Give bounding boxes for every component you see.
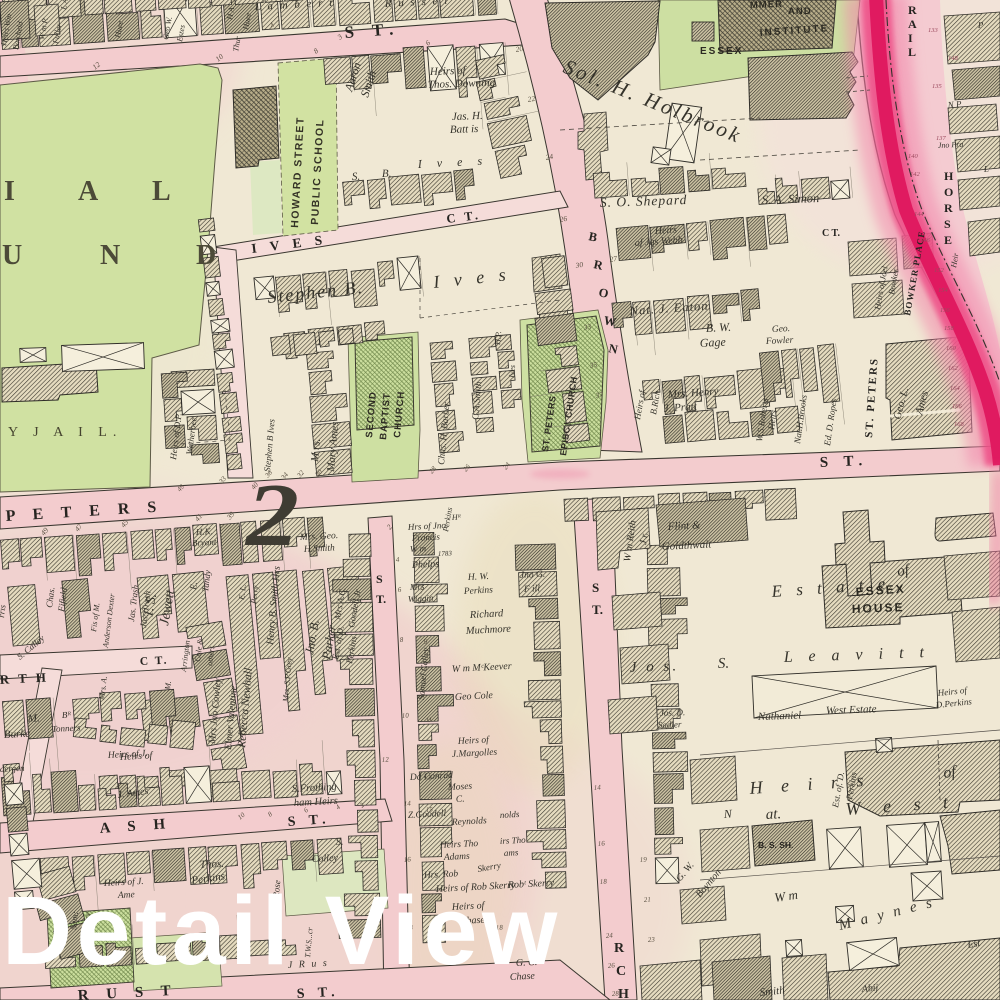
svg-text:Heirs of: Heirs of [429,65,468,78]
svg-text:Heirs Tho: Heirs Tho [439,839,479,851]
svg-text:Phelps: Phelps [411,559,440,571]
svg-text:28: 28 [611,989,619,998]
svg-text:B. S. SH.: B. S. SH. [758,840,793,850]
svg-text:H. W.: H. W. [467,572,490,583]
svg-text:W m: W m [410,543,427,554]
svg-text:S T.: S T. [819,453,868,471]
svg-text:Jos. D.: Jos. D. [660,707,686,718]
svg-text:162: 162 [948,365,959,372]
svg-text:133: 133 [928,27,939,34]
svg-text:S.: S. [352,171,361,183]
svg-text:14: 14 [403,799,411,808]
svg-text:Geo.: Geo. [772,324,791,335]
svg-text:23: 23 [647,935,655,944]
svg-text:135: 135 [932,83,943,90]
svg-text:16: 16 [403,855,411,864]
svg-text:H.Smith: H.Smith [303,543,336,555]
svg-text:158: 158 [944,325,955,332]
svg-text:16: 16 [597,839,605,848]
svg-text:irs Tho: irs Tho [500,835,527,846]
svg-text:S.: S. [718,656,730,672]
svg-text:E.: E. [188,581,199,591]
svg-text:Perkins: Perkins [463,585,494,597]
svg-text:160: 160 [946,345,957,352]
svg-text:Reynolds: Reynolds [451,816,488,828]
svg-text:L: L [908,45,916,59]
svg-text:M.: M. [163,681,173,692]
svg-text:H.K.: H.K. [195,526,214,537]
svg-text:140: 140 [908,153,919,160]
svg-text:148: 148 [948,55,959,62]
svg-text:142: 142 [910,171,921,178]
svg-text:C T.: C T. [822,228,840,239]
svg-text:C T.: C T. [140,655,169,668]
svg-text:S. O. Shepard: S. O. Shepard [600,192,688,210]
svg-text:N: N [722,807,733,822]
svg-text:T.: T. [376,592,386,606]
svg-text:L: L [983,164,990,174]
svg-text:Moses: Moses [447,782,473,793]
svg-text:E: E [944,233,952,247]
svg-text:Richard: Richard [469,608,505,621]
svg-text:West Estate: West Estate [826,703,877,717]
svg-text:Mrs. Geo.: Mrs. Geo. [299,531,339,543]
svg-text:Thos.: Thos. [200,858,225,871]
svg-text:M rs.: M rs. [309,438,323,463]
svg-text:19: 19 [639,855,647,864]
svg-text:Flint &: Flint & [667,519,702,533]
svg-text:B. W.: B. W. [705,320,731,335]
svg-text:T.: T. [592,602,603,617]
svg-text:U: U [2,240,22,271]
svg-text:15: 15 [425,805,433,814]
svg-text:R: R [908,3,917,17]
svg-text:Bryant: Bryant [192,537,217,548]
svg-text:J o s.: J o s. [630,658,680,676]
svg-text:Ives: Ives [507,365,517,380]
svg-text:S T.: S T. [296,985,340,1000]
svg-text:R T H: R T H [0,669,49,687]
svg-text:ESSEX: ESSEX [700,46,743,57]
svg-text:11: 11 [425,715,432,724]
svg-text:H: H [944,169,954,183]
svg-text:Heirs of: Heirs of [457,734,491,747]
svg-text:10: 10 [401,711,409,720]
svg-text:D: D [196,240,216,271]
svg-text:154: 154 [938,287,949,294]
svg-text:F ill: F ill [523,584,541,595]
svg-text:O: O [944,185,953,199]
svg-text:1783: 1783 [438,549,453,558]
svg-text:Batt is: Batt is [450,123,479,136]
svg-text:Bᴿ: Bᴿ [62,710,72,720]
svg-text:L: L [152,176,171,207]
svg-text:166: 166 [952,403,963,410]
svg-text:Jas. H.: Jas. H. [452,110,483,123]
svg-text:S.Frothing: S.Frothing [292,782,337,795]
svg-text:12: 12 [381,755,389,764]
svg-text:HOUSE: HOUSE [852,600,905,616]
svg-text:J. Pratt: J. Pratt [663,401,698,415]
svg-text:Nathaniel: Nathaniel [757,709,802,723]
svg-text:A: A [908,17,917,31]
svg-text:156: 156 [940,307,951,314]
svg-text:J r.: J r. [638,532,651,546]
svg-text:Colley: Colley [312,853,339,865]
svg-text:Burke: Burke [4,728,31,741]
svg-text:N P: N P [946,99,962,110]
svg-text:I: I [908,31,913,45]
svg-text:S T.: S T. [287,812,331,830]
svg-text:Heirs of J.: Heirs of J. [107,748,148,761]
svg-text:S: S [592,580,599,595]
svg-text:18: 18 [599,877,607,886]
svg-text:Geo Cole: Geo Cole [455,690,494,703]
svg-text:Francis: Francis [411,532,441,544]
svg-text:24: 24 [605,931,613,940]
svg-text:N: N [100,240,120,271]
svg-text:MMER: MMER [750,0,783,11]
svg-text:S: S [944,217,951,231]
svg-text:Thos. Downing: Thos. Downing [428,77,496,91]
svg-text:S T.: S T. [344,19,401,42]
svg-text:nolds: nolds [500,809,520,820]
svg-text:B.: B. [382,168,392,180]
svg-text:Adams: Adams [443,852,471,863]
svg-text:152: 152 [934,267,945,274]
svg-text:C: C [616,964,626,979]
svg-text:21: 21 [643,895,651,904]
svg-text:2: 2 [244,465,299,565]
svg-text:ams: ams [504,847,520,858]
svg-text:dergen: dergen [0,763,25,774]
svg-text:Fowler: Fowler [765,336,794,347]
svg-text:A: A [78,176,99,207]
svg-text:Abij: Abij [860,982,879,995]
svg-text:Detail View: Detail View [2,876,562,985]
svg-text:H.P.: H.P. [493,331,503,346]
svg-text:Gage: Gage [699,335,726,350]
svg-text:C.: C. [456,795,465,805]
svg-text:14: 14 [593,783,601,792]
svg-text:168: 168 [954,421,965,428]
svg-text:M.: M. [27,712,41,725]
svg-text:ham Heirs: ham Heirs [294,796,339,809]
svg-text:144: 144 [914,211,925,218]
svg-text:AND: AND [788,6,812,17]
svg-text:146: 146 [920,237,931,244]
svg-text:at.: at. [765,806,781,823]
svg-text:Tonners: Tonners [52,722,82,734]
svg-text:R: R [944,201,953,215]
svg-text:P: P [977,20,985,30]
svg-text:Sadler: Sadler [658,719,682,730]
svg-text:R: R [614,941,625,956]
svg-text:S. A. Simon: S. A. Simon [762,191,820,207]
svg-text:26: 26 [607,961,615,970]
svg-text:I: I [4,176,15,207]
svg-text:Jno G.: Jno G. [520,570,546,581]
svg-text:164: 164 [950,385,961,392]
svg-text:13: 13 [423,773,431,782]
svg-text:Y J A I L.: Y J A I L. [8,425,122,440]
svg-text:S.: S. [336,837,344,848]
svg-text:H: H [618,987,629,1000]
svg-text:S: S [376,572,383,586]
svg-text:Jno Pra: Jno Pra [938,140,964,150]
